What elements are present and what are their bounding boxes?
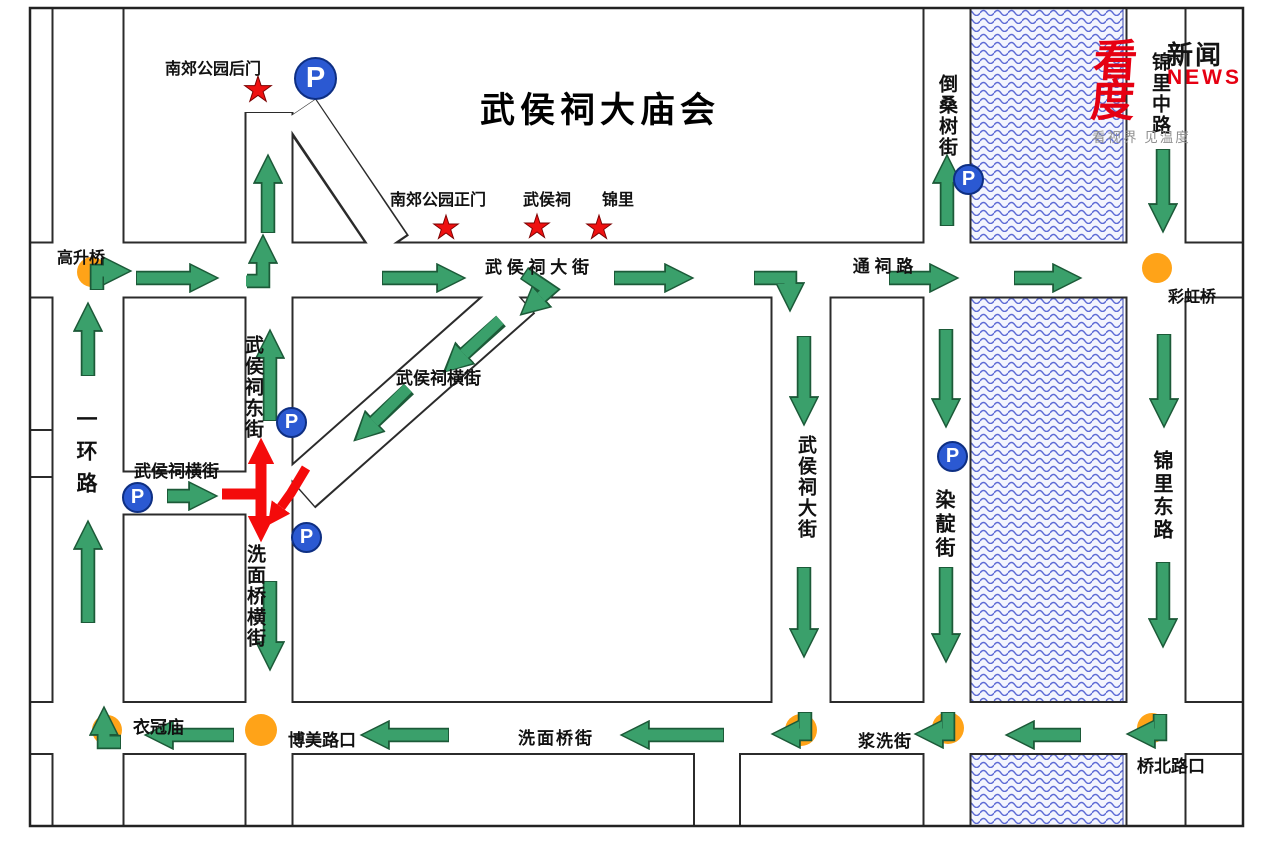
parking-icon-ximianqiao: P — [291, 522, 322, 553]
label-yiguanmiao: 衣冠庙 — [133, 713, 184, 738]
west-side-stub-lines — [30, 430, 53, 477]
label-wuhouci-hengjie-west: 武侯祠横街 — [134, 457, 219, 482]
label-jinli: 锦里 — [602, 186, 634, 210]
label-gaoshengqiao: 高升桥 — [57, 244, 105, 268]
label-wuhouci-hengjie-diagonal: 武侯祠横街 — [396, 364, 481, 389]
label-randian-jie: 染靛街 — [929, 489, 958, 561]
label-qiaobei-lukou: 桥北路口 — [1137, 752, 1205, 777]
star-jinli — [587, 215, 612, 239]
logo-tagline: 看视界 见温度 — [1092, 126, 1242, 146]
star-nanjiao-main-gate — [434, 215, 459, 239]
parking-icon-nanjiao: P — [294, 57, 337, 100]
label-jiangxi-jie: 浆洗街 — [858, 727, 912, 752]
star-wuhouci — [525, 214, 550, 238]
label-jinli-donglu: 锦里东路 — [1147, 450, 1176, 542]
label-ximianqiao-jie: 洗面桥街 — [518, 724, 594, 749]
label-yihuan-lu: 一环路 — [70, 408, 100, 504]
star-nanjiao-back-gate — [245, 76, 272, 101]
label-bomei-lukou: 博美路口 — [288, 726, 356, 751]
junction-dot-caihongqiao — [1142, 253, 1172, 283]
label-daosangshu-jie: 倒桑树街 — [933, 74, 960, 158]
label-tongci-lu: 通 祠 路 — [853, 252, 913, 277]
kandu-news-logo: 看度 新闻 NEWS 看视界 见温度 — [1092, 42, 1242, 146]
label-nanjiao-back-gate: 南郊公园后门 — [165, 55, 261, 79]
temple-fair-traffic-map: 武侯祠大庙会 看度 新闻 NEWS 看视界 见温度 P P P P P P 南郊… — [0, 0, 1280, 847]
label-wuhouci: 武侯祠 — [523, 186, 571, 210]
label-wuhouci-dongjie: 武侯祠东街 — [239, 335, 266, 440]
label-caihongqiao: 彩虹桥 — [1168, 283, 1216, 307]
parking-icon-wuhouci-dongjie: P — [276, 407, 307, 438]
parking-icon-daosangshujie: P — [953, 164, 984, 195]
map-title: 武侯祠大庙会 — [480, 82, 720, 133]
logo-news-text: NEWS — [1167, 68, 1242, 88]
logo-brand-xinwen: 新闻 — [1167, 42, 1242, 68]
label-ximianqiao-hengjie: 洗面桥横街 — [241, 544, 268, 649]
label-nanjiao-main-gate: 南郊公园正门 — [390, 186, 486, 210]
parking-icon-randianjie: P — [937, 441, 968, 472]
logo-brand-kandu: 看度 — [1089, 42, 1164, 122]
label-wuhouci-dajie-south: 武侯祠大街 — [792, 435, 819, 540]
parking-icon-wuhouci-hengjie: P — [122, 482, 153, 513]
junction-dot-bomeilukou — [245, 714, 277, 746]
label-wuhouci-dajie: 武 侯 祠 大 街 — [485, 253, 589, 278]
